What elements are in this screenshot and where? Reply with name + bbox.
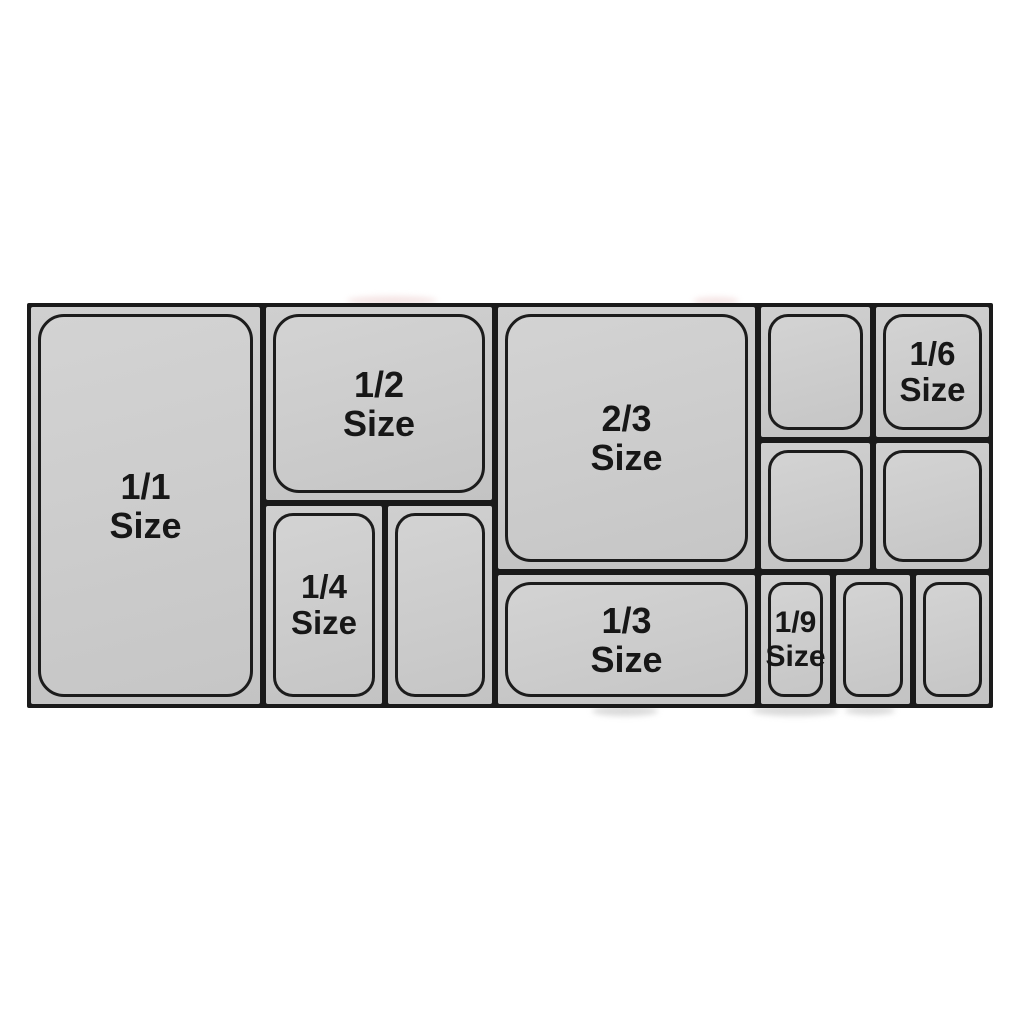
pan-cell-1-3: 1/3 Size xyxy=(498,575,755,704)
pan-1-6-unlabeled-mid-left xyxy=(768,450,863,562)
pan-1-2-label: 1/2 Size xyxy=(343,365,415,443)
pan-cell-1-1: 1/1 Size xyxy=(31,307,260,704)
pan-cell-1-6-unlabeled-mid-left xyxy=(761,443,870,569)
pan-1-4-label: 1/4 Size xyxy=(291,569,357,641)
pan-2-3-label: 2/3 Size xyxy=(590,399,662,477)
pan-2-3: 2/3 Size xyxy=(505,314,748,562)
pan-cell-1-4: 1/4 Size xyxy=(266,506,382,704)
pan-1-4-unlabeled xyxy=(395,513,485,697)
pan-1-6: 1/6 Size xyxy=(883,314,982,430)
pan-1-6-label: 1/6 Size xyxy=(899,336,965,408)
pan-cell-1-6-unlabeled-mid-right xyxy=(876,443,989,569)
pan-1-2: 1/2 Size xyxy=(273,314,485,493)
pan-1-9-unlabeled-right xyxy=(923,582,982,697)
pan-cell-2-3: 2/3 Size xyxy=(498,307,755,569)
pan-1-6-unlabeled-mid-right xyxy=(883,450,982,562)
pan-cell-1-9-unlabeled-right xyxy=(916,575,989,704)
pan-cell-1-6-unlabeled-top-left xyxy=(761,307,870,437)
pan-cell-1-6: 1/6 Size xyxy=(876,307,989,437)
pan-size-chart-page: 1/1 Size 1/2 Size 1/4 Size xyxy=(0,0,1024,1024)
pan-1-3: 1/3 Size xyxy=(505,582,748,697)
pan-1-9-unlabeled-mid xyxy=(843,582,903,697)
pan-1-3-label: 1/3 Size xyxy=(590,601,662,679)
pan-1-1-label: 1/1 Size xyxy=(109,467,181,545)
pan-1-6-unlabeled-top-left xyxy=(768,314,863,430)
pan-1-4: 1/4 Size xyxy=(273,513,375,697)
pan-cell-1-4-unlabeled xyxy=(388,506,492,704)
pan-1-9-label: 1/9 Size xyxy=(765,606,825,674)
pan-cell-1-9: 1/9 Size xyxy=(761,575,830,704)
gastronorm-size-diagram: 1/1 Size 1/2 Size 1/4 Size xyxy=(27,303,993,708)
pan-1-9: 1/9 Size xyxy=(768,582,823,697)
pan-1-1: 1/1 Size xyxy=(38,314,253,697)
pan-cell-1-9-unlabeled-mid xyxy=(836,575,910,704)
pan-cell-1-2: 1/2 Size xyxy=(266,307,492,500)
